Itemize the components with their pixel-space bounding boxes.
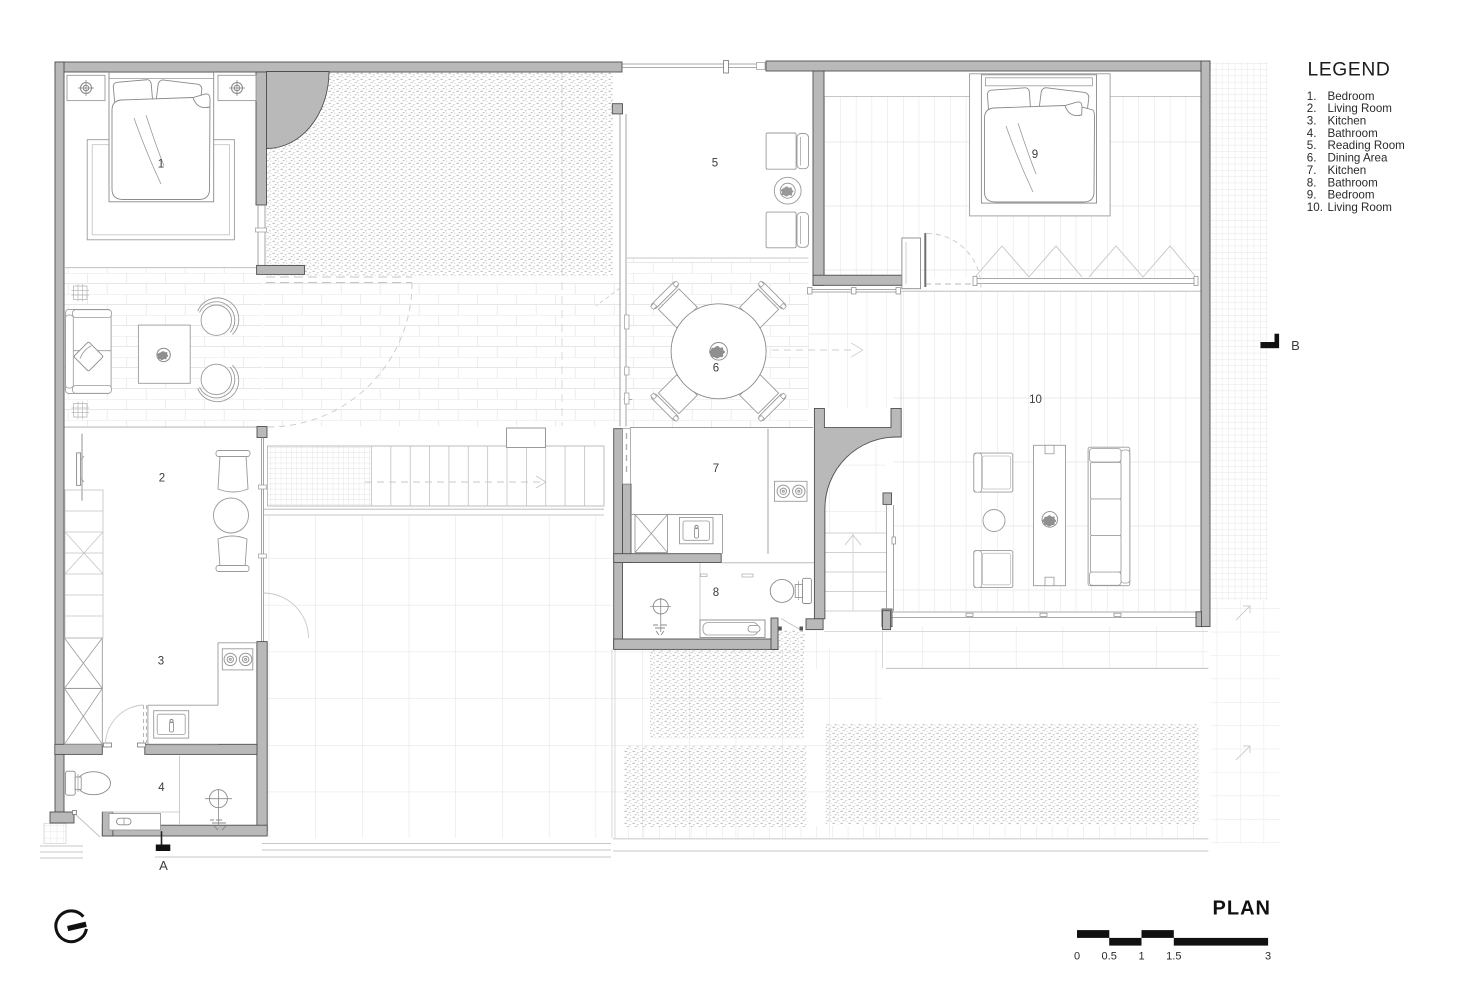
svg-text:9: 9 [1032,149,1038,161]
svg-text:9.: 9. [1307,189,1317,202]
svg-text:Reading Room: Reading Room [1328,139,1405,152]
svg-text:2: 2 [159,473,165,485]
svg-text:4: 4 [158,782,165,794]
svg-text:A: A [159,858,168,873]
svg-text:Bedroom: Bedroom [1328,189,1375,202]
svg-text:5.: 5. [1307,139,1317,152]
svg-text:7.: 7. [1307,164,1317,177]
svg-text:3: 3 [158,656,164,668]
svg-text:0.5: 0.5 [1102,951,1117,963]
svg-text:LEGEND: LEGEND [1308,60,1391,81]
svg-text:Kitchen: Kitchen [1328,164,1367,177]
svg-text:4.: 4. [1307,127,1317,140]
svg-text:2.: 2. [1307,102,1317,115]
svg-text:3.: 3. [1307,115,1317,128]
svg-text:8.: 8. [1307,176,1317,189]
svg-text:Living Room: Living Room [1328,102,1392,115]
svg-text:1: 1 [158,159,164,171]
svg-text:Bathroom: Bathroom [1328,176,1378,189]
svg-text:1.: 1. [1307,90,1317,103]
svg-text:6: 6 [713,363,719,375]
svg-text:6.: 6. [1307,152,1317,165]
svg-text:Living Room: Living Room [1328,201,1392,214]
svg-text:10: 10 [1029,394,1042,406]
svg-text:Bedroom: Bedroom [1328,90,1375,103]
svg-text:PLAN: PLAN [1213,898,1271,920]
svg-text:Dining Area: Dining Area [1328,152,1388,165]
svg-text:Bathroom: Bathroom [1328,127,1378,140]
svg-text:10.: 10. [1307,201,1323,214]
svg-text:5: 5 [712,158,718,170]
svg-text:B: B [1291,338,1300,353]
svg-text:0: 0 [1074,951,1080,963]
svg-text:1.5: 1.5 [1166,951,1181,963]
svg-text:8: 8 [713,587,719,599]
svg-text:Kitchen: Kitchen [1328,115,1367,128]
svg-text:7: 7 [713,463,719,475]
svg-text:1: 1 [1138,951,1144,963]
svg-text:3: 3 [1265,951,1271,963]
